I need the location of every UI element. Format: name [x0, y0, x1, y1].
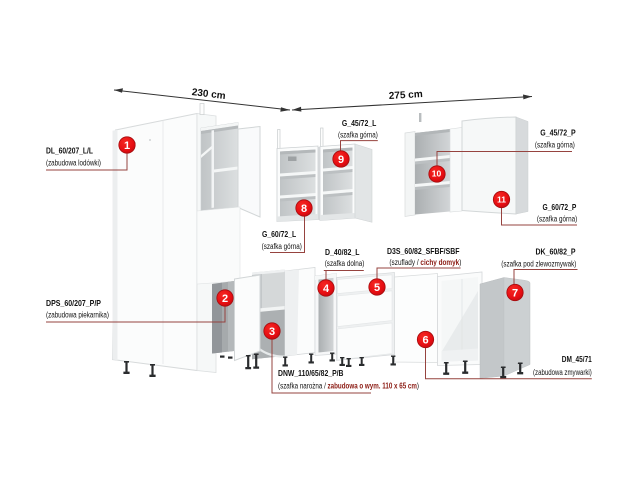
svg-text:DM_45/71: DM_45/71	[562, 354, 592, 364]
svg-text:(szafka pod zlewozmywak): (szafka pod zlewozmywak)	[501, 259, 576, 268]
svg-text:11: 11	[497, 195, 506, 205]
svg-text:4: 4	[323, 283, 330, 295]
svg-text:3: 3	[269, 326, 275, 338]
svg-text:DL_60/207_L/L: DL_60/207_L/L	[46, 146, 93, 156]
svg-text:8: 8	[301, 203, 307, 215]
svg-text:9: 9	[338, 154, 344, 166]
svg-text:(zabudowa piekarnika): (zabudowa piekarnika)	[46, 311, 109, 320]
svg-text:(szafka narożna / zabudowa o w: (szafka narożna / zabudowa o wym. 110 x …	[278, 382, 419, 391]
svg-text:2: 2	[222, 293, 228, 305]
svg-text:G_45/72_P: G_45/72_P	[540, 128, 576, 138]
svg-text:10: 10	[432, 169, 442, 179]
svg-text:G_60/72_P: G_60/72_P	[543, 202, 577, 212]
svg-text:D3S_60/82_SFBF/SBF: D3S_60/82_SFBF/SBF	[387, 246, 460, 256]
svg-text:(szafka górna): (szafka górna)	[535, 140, 575, 149]
svg-text:DNW_110/65/82_P/B: DNW_110/65/82_P/B	[278, 368, 344, 378]
svg-text:(szafka górna): (szafka górna)	[338, 130, 378, 139]
svg-text:(szafka górna): (szafka górna)	[262, 242, 303, 251]
svg-text:(szafka dolna): (szafka dolna)	[325, 259, 365, 268]
svg-text:DPS_60/207_P/P: DPS_60/207_P/P	[46, 298, 101, 308]
svg-text:275 cm: 275 cm	[389, 89, 424, 102]
svg-text:(szuflady / cichy domyk): (szuflady / cichy domyk)	[389, 258, 461, 267]
svg-text:D_40/82_L: D_40/82_L	[325, 247, 360, 257]
svg-text:G_45/72_L: G_45/72_L	[342, 118, 376, 128]
svg-text:DK_60/82_P: DK_60/82_P	[536, 247, 576, 257]
svg-text:6: 6	[422, 335, 428, 347]
svg-text:1: 1	[124, 140, 130, 152]
svg-text:(szafka górna): (szafka górna)	[537, 214, 578, 223]
svg-text:(zabudowa zmywarki): (zabudowa zmywarki)	[533, 368, 592, 377]
svg-text:G_60/72_L: G_60/72_L	[262, 229, 296, 239]
svg-text:5: 5	[374, 282, 380, 294]
svg-text:(zabudowa lodówki): (zabudowa lodówki)	[46, 159, 101, 168]
svg-text:7: 7	[512, 288, 518, 300]
